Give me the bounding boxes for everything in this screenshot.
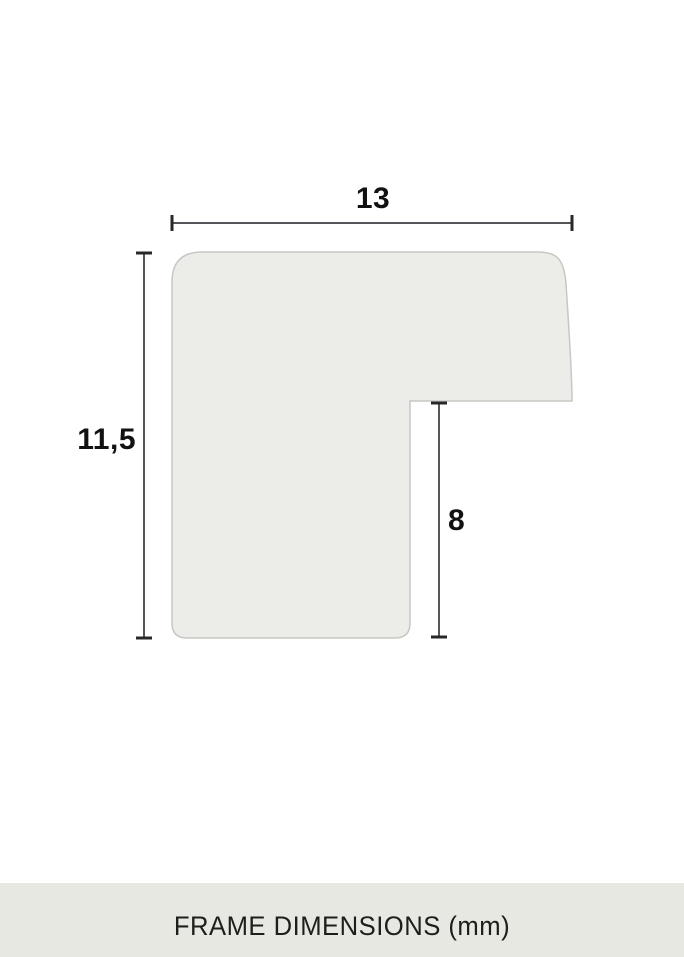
rabbet-dimension-line <box>431 403 447 637</box>
frame-cross-section-diagram: 13 11,5 8 <box>0 0 684 883</box>
rabbet-dimension-label: 8 <box>448 506 472 536</box>
caption-text: FRAME DIMENSIONS (mm) <box>174 911 510 942</box>
width-dimension-label: 13 <box>340 184 406 214</box>
product-image-canvas: 13 11,5 8 FRAME DIMENSIONS (mm) <box>0 0 684 957</box>
caption-bar: FRAME DIMENSIONS (mm) <box>0 883 684 957</box>
width-dimension-line <box>172 215 572 231</box>
height-dimension-label: 11,5 <box>58 425 136 455</box>
height-dimension-line <box>136 253 152 638</box>
frame-profile-shape <box>172 252 572 638</box>
